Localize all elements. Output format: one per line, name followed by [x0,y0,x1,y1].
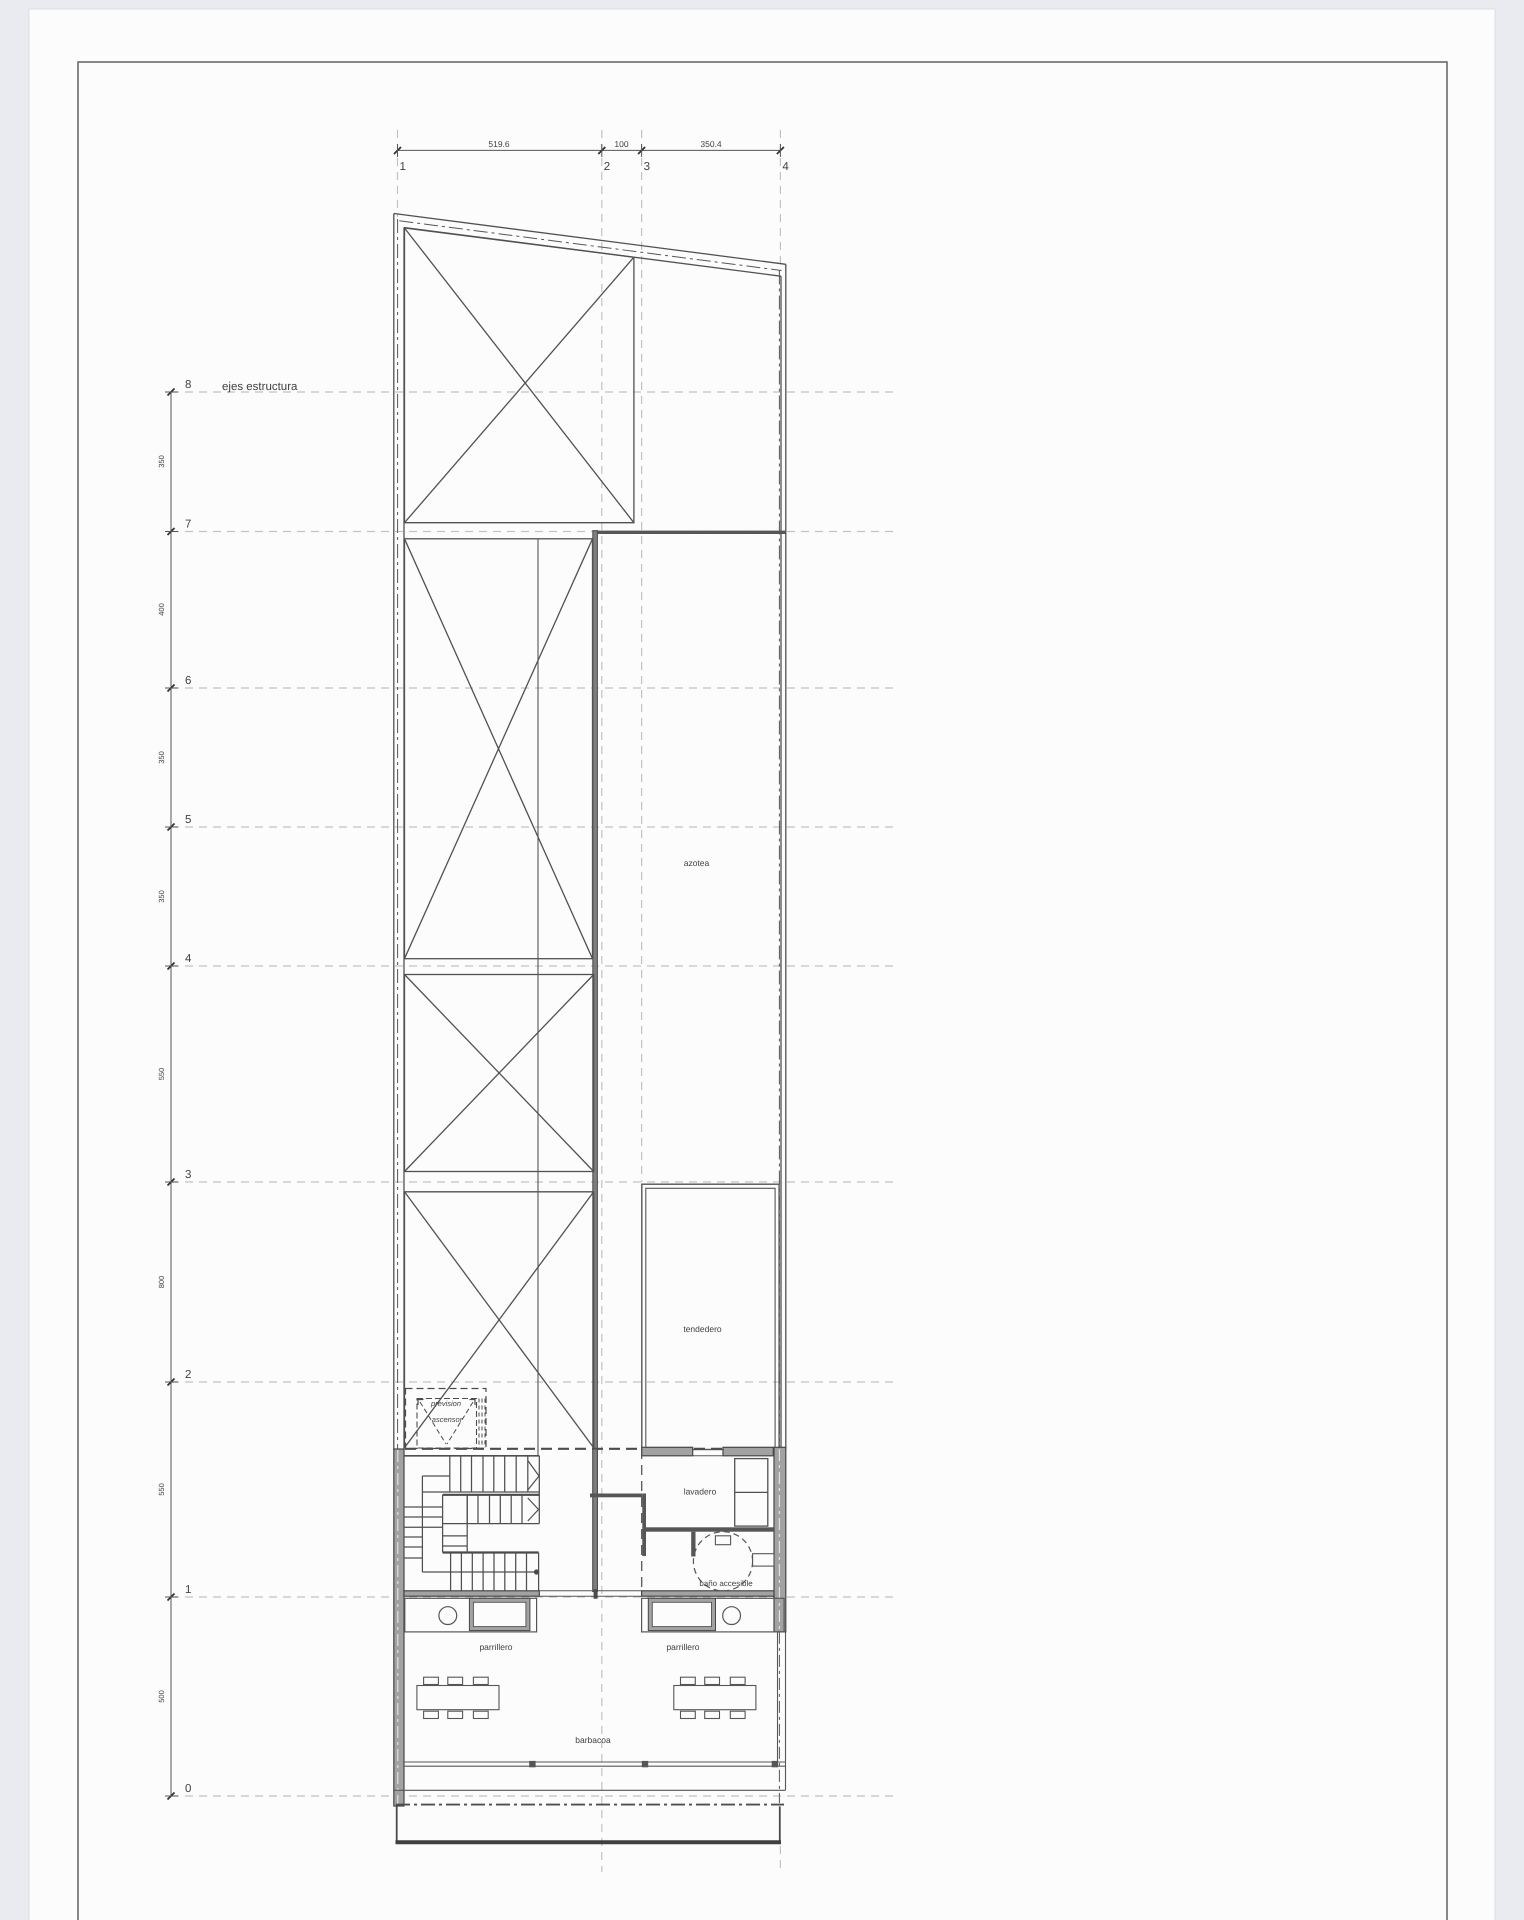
svg-text:350: 350 [157,751,166,764]
svg-text:7: 7 [185,519,191,531]
svg-text:350.4: 350.4 [700,139,722,149]
svg-text:400: 400 [157,603,166,616]
svg-text:550: 550 [157,1483,166,1496]
svg-text:4: 4 [782,161,789,173]
svg-text:800: 800 [157,1276,166,1289]
svg-text:prevision: prevision [430,1399,461,1408]
svg-text:ascensor: ascensor [432,1415,463,1424]
svg-text:baño accesible: baño accesible [699,1579,753,1588]
svg-text:1: 1 [400,161,406,173]
svg-text:350: 350 [157,455,166,468]
svg-text:5: 5 [185,814,191,826]
svg-text:519.6: 519.6 [488,139,510,149]
svg-text:3: 3 [185,1169,191,1181]
svg-text:ejes estructura: ejes estructura [222,381,298,393]
svg-text:6: 6 [185,675,191,687]
svg-text:parrillero: parrillero [479,1642,512,1652]
svg-text:3: 3 [644,161,650,173]
svg-text:0: 0 [185,1783,191,1795]
svg-text:parrillero: parrillero [666,1642,699,1652]
svg-text:2: 2 [604,161,610,173]
svg-text:550: 550 [157,1068,166,1081]
svg-text:2: 2 [185,1369,191,1381]
svg-text:azotea: azotea [684,858,710,868]
svg-text:100: 100 [614,139,628,149]
svg-text:500: 500 [157,1690,166,1703]
svg-text:barbacoa: barbacoa [575,1735,611,1745]
svg-text:tendedero: tendedero [683,1324,722,1334]
svg-text:8: 8 [185,379,191,391]
svg-text:1: 1 [185,1584,191,1596]
svg-text:350: 350 [157,890,166,903]
svg-text:4: 4 [185,953,192,965]
svg-text:lavadero: lavadero [684,1487,717,1497]
